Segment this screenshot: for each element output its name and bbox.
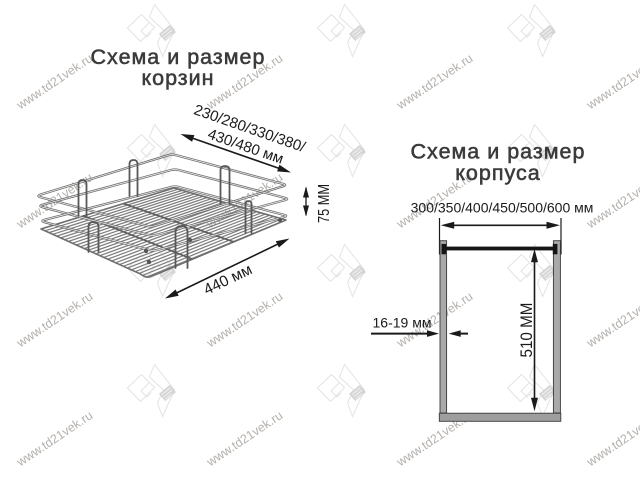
svg-text:510 ММ: 510 ММ — [517, 303, 536, 358]
svg-text:75 ММ: 75 ММ — [316, 184, 333, 223]
svg-text:16-19 мм: 16-19 мм — [373, 315, 432, 331]
svg-text:www.td21vek.ru: www.td21vek.ru — [583, 289, 640, 351]
svg-text:300/350/400/450/500/600 мм: 300/350/400/450/500/600 мм — [411, 200, 594, 216]
svg-text:www.td21vek.ru: www.td21vek.ru — [393, 51, 475, 113]
svg-text:www.td21vek.ru: www.td21vek.ru — [203, 408, 285, 470]
svg-text:www.td21vek.ru: www.td21vek.ru — [13, 408, 95, 470]
svg-text:Схема и размер: Схема и размер — [411, 140, 586, 164]
svg-text:www.td21vek.ru: www.td21vek.ru — [583, 408, 640, 470]
svg-text:www.td21vek.ru: www.td21vek.ru — [583, 51, 640, 113]
svg-text:корзин: корзин — [141, 66, 214, 90]
svg-text:www.td21vek.ru: www.td21vek.ru — [203, 289, 285, 351]
svg-text:440 мм: 440 мм — [201, 261, 255, 299]
svg-text:корпуса: корпуса — [455, 161, 540, 185]
svg-text:www.td21vek.ru: www.td21vek.ru — [13, 51, 95, 113]
svg-text:www.td21vek.ru: www.td21vek.ru — [13, 289, 95, 351]
